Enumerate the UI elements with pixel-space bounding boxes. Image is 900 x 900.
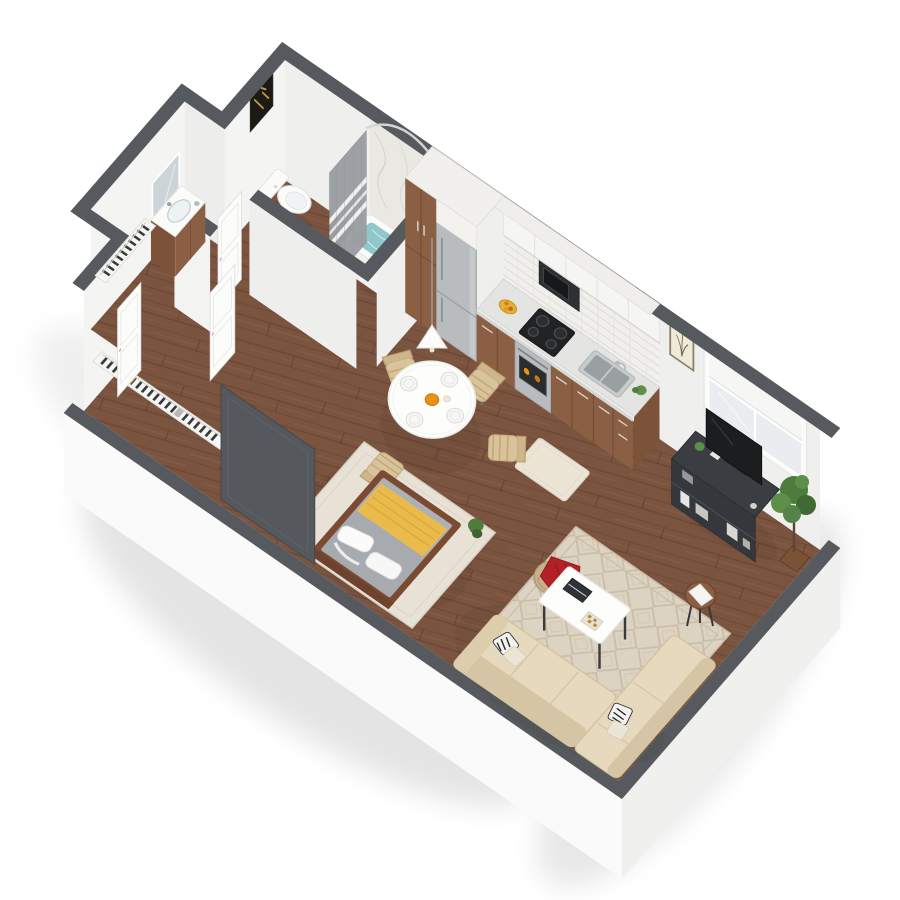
floorplan-svg	[0, 0, 900, 900]
floorplan-3d-render	[0, 0, 900, 900]
dining-chair	[488, 434, 526, 462]
refrigerator	[437, 199, 477, 362]
